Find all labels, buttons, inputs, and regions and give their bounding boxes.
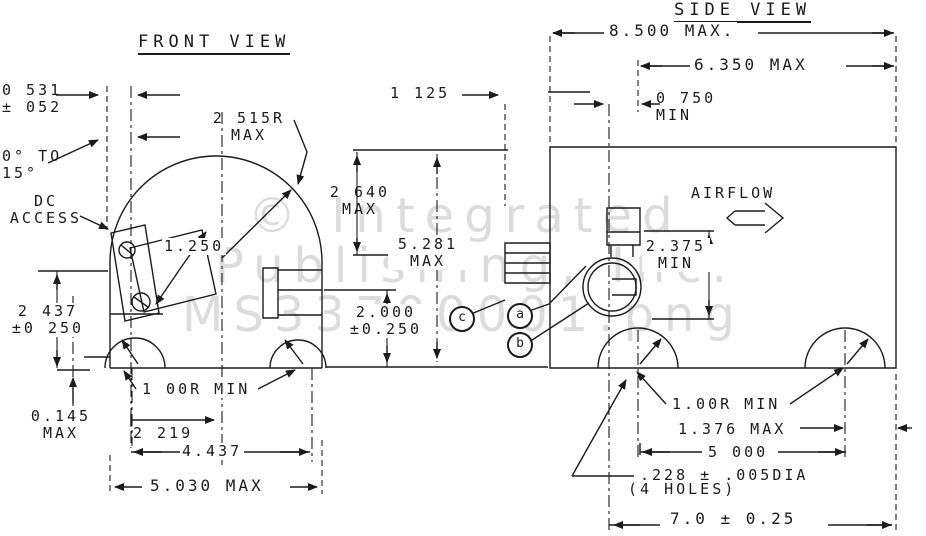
- dim-5281: 5.281MAX: [388, 236, 468, 270]
- dim-5030: 5.030 MAX: [148, 477, 266, 495]
- dim-228-holes: (4 HOLES): [628, 481, 736, 498]
- dim-2640: 2 640MAX: [322, 184, 398, 218]
- dim-foot-radius-front: 1 00R MIN: [140, 381, 252, 398]
- dim-4437: 4.437: [180, 443, 244, 460]
- dim-0750: 0 750MIN: [656, 90, 716, 124]
- dim-0145: 0.145MAX: [20, 408, 102, 442]
- side-view-title: SIDE VIEW: [674, 1, 811, 23]
- dim-dome-radius: 2 515RMAX: [206, 110, 292, 144]
- dim-2219: 2 219: [133, 425, 193, 442]
- dim-1250: 1.250: [162, 238, 226, 255]
- front-view-outline: [84, 156, 326, 368]
- dim-0531: 0 531± 052: [2, 82, 62, 116]
- balloon-a: a: [507, 303, 533, 329]
- dim-70: 7.0 ± 0.25: [668, 510, 798, 528]
- dim-angle: 0° TO15°: [2, 148, 62, 182]
- dim-2000: 2.000±0.250: [340, 304, 432, 338]
- dim-6350: 6.350 MAX: [692, 56, 810, 74]
- dim-2437: 2 437±0 250: [2, 303, 94, 337]
- label-airflow: AIRFLOW: [691, 185, 775, 202]
- dim-8500: 8.500 MAX.: [607, 22, 737, 40]
- dim-2375: 2.375MIN: [642, 238, 710, 272]
- dim-1125: 1 125: [390, 85, 450, 102]
- dim-foot-radius-side: 1.00R MIN: [670, 396, 782, 413]
- label-dc-access: DCACCESS: [4, 193, 88, 227]
- balloon-b: b: [507, 332, 533, 358]
- dim-1376: 1.376 MAX: [676, 421, 788, 438]
- dim-5000: 5 000: [706, 444, 770, 461]
- drawing-canvas: © Integrated Publishing, Inc. MS33700001…: [0, 0, 926, 536]
- balloon-c: c: [449, 306, 475, 332]
- front-view-title: FRONT VIEW: [138, 33, 290, 55]
